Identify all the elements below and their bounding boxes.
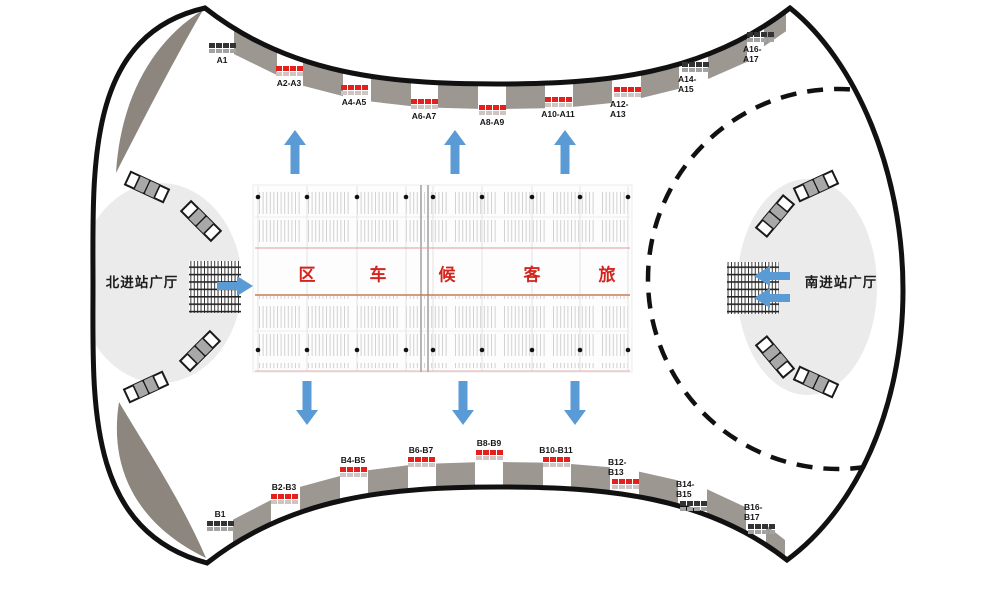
gate-status-blocks [545,97,572,107]
gate-A8-A9: A8-A9 [475,105,509,129]
gate-label: B16-B17 [744,502,778,522]
floorplan-graphics [0,0,1008,590]
gate-status-blocks [276,66,303,76]
column-dot [578,195,583,200]
gate-status-blocks [340,467,367,477]
column-dot [256,195,261,200]
gate-status-blocks [408,457,435,467]
column-dot [530,195,535,200]
gate-A14-A15: A14-A15 [678,62,712,96]
gate-label: A1 [217,55,228,65]
column-dot [626,195,631,200]
waiting-area-char-1: 区 [299,261,316,286]
south-hall-label: 南进站广厅 [805,271,878,291]
waiting-area-char-2: 车 [370,261,387,286]
column-dot [578,348,583,353]
gate-B10-B11: B10-B11 [539,443,573,467]
gate-B14-B15: B14-B15 [676,477,710,511]
gate-status-blocks [543,457,570,467]
waiting-area-char-4: 客 [524,261,541,286]
gate-label: B4-B5 [341,455,366,465]
gate-label: B8-B9 [477,438,502,448]
gate-B6-B7: B6-B7 [404,443,438,467]
gate-B2-B3: B2-B3 [267,480,301,504]
column-dot [305,195,310,200]
column-dot [355,195,360,200]
gate-A6-A7: A6-A7 [407,99,441,123]
gate-B12-B13: B12-B13 [608,455,642,489]
gate-status-blocks [748,524,775,534]
gate-B1: B1 [203,507,237,531]
security-gates-south [727,262,779,314]
gate-label: A2-A3 [277,78,302,88]
canopy-segment-top [506,83,545,109]
column-dot [530,348,535,353]
north-hall-label: 北进站广厅 [106,271,179,291]
gate-B16-B17: B16-B17 [744,500,778,534]
gate-status-blocks [207,521,234,531]
gate-label: B14-B15 [676,479,710,499]
gate-label: A12-A13 [610,99,644,119]
gate-label: A8-A9 [480,117,505,127]
canopy-segment-bottom [503,462,543,488]
column-dot [431,195,436,200]
gate-status-blocks [682,62,709,72]
gate-status-blocks [680,501,707,511]
gate-label: A16-A17 [743,44,777,64]
gate-status-blocks [341,85,368,95]
column-dot [626,348,631,353]
gate-B4-B5: B4-B5 [336,453,370,477]
gate-A2-A3: A2-A3 [272,66,306,90]
canopy-segment-top [438,83,478,109]
column-dot [404,195,409,200]
gate-label: B10-B11 [539,445,573,455]
gate-A10-A11: A10-A11 [541,97,575,121]
gate-A4-A5: A4-A5 [337,85,371,109]
gate-label: B12-B13 [608,457,642,477]
gate-status-blocks [411,99,438,109]
gate-status-blocks [209,43,236,53]
gate-label: A14-A15 [678,74,712,94]
gate-status-blocks [479,105,506,115]
gate-label: B2-B3 [272,482,297,492]
gate-A16-A17: A16-A17 [743,32,777,66]
gate-A1: A1 [205,43,239,67]
gate-label: A10-A11 [541,109,575,119]
waiting-area-char-5: 旅 [599,261,616,286]
column-dot [480,195,485,200]
waiting-area-char-3: 候 [439,261,456,286]
gate-label: B6-B7 [409,445,434,455]
canopy-segment-bottom [436,462,475,488]
gate-status-blocks [614,87,641,97]
column-dot [480,348,485,353]
gate-status-blocks [476,450,503,460]
gate-status-blocks [271,494,298,504]
gate-A12-A13: A12-A13 [610,87,644,121]
column-dot [404,348,409,353]
gate-status-blocks [612,479,639,489]
column-dot [431,348,436,353]
gate-label: A6-A7 [412,111,437,121]
station-floorplan: 北进站广厅 南进站广厅 区 车 候 客 旅 A1A2-A3A4-A5A6-A7A… [0,0,1008,590]
column-dot [355,348,360,353]
column-dot [305,348,310,353]
gate-label: B1 [215,509,226,519]
gate-label: A4-A5 [342,97,367,107]
gate-B8-B9: B8-B9 [472,436,506,460]
column-dot [256,348,261,353]
gate-status-blocks [747,32,774,42]
